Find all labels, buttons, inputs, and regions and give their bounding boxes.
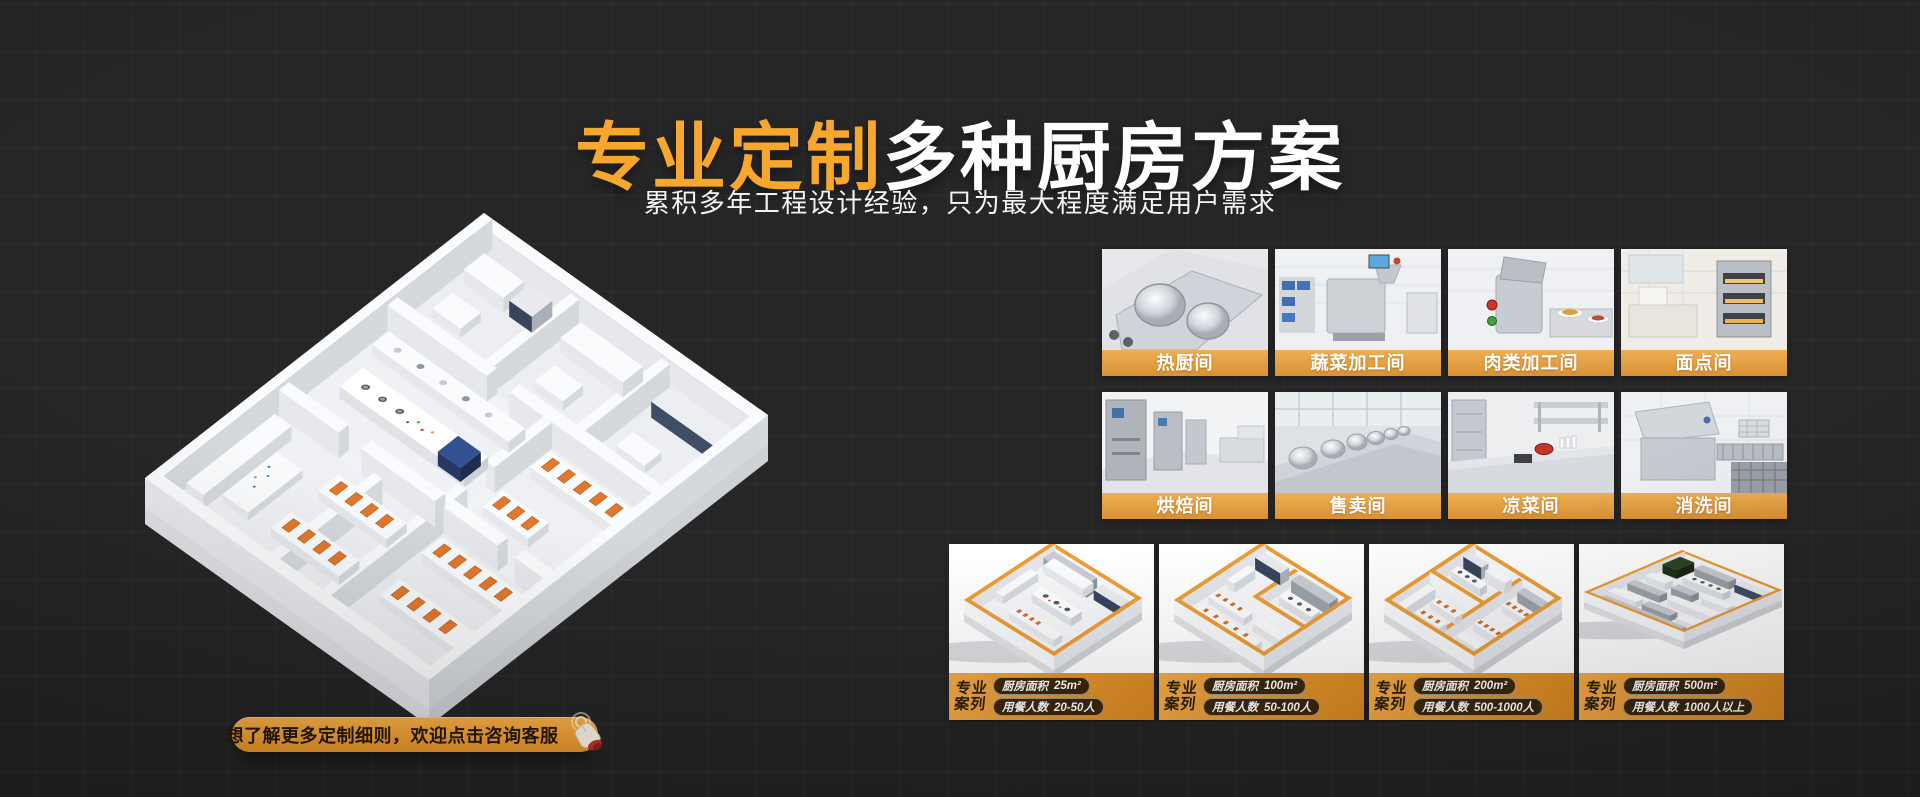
case-tag: 专业案列 <box>1163 681 1198 713</box>
case-tag: 专业案列 <box>1583 681 1618 713</box>
case-specs: 厨房面积25m² 用餐人数20-50人 <box>993 677 1104 716</box>
case-tag: 专业案列 <box>1373 681 1408 713</box>
case-card-500m2: 专业案列 厨房面积500m² 用餐人数1000人以上 <box>1579 544 1784 720</box>
room-tile-vegetable-processing: 蔬菜加工间 <box>1275 249 1441 376</box>
kitchen-area-spec: 厨房面积25m² <box>993 677 1090 695</box>
diners-count-spec: 用餐人数20-50人 <box>993 698 1104 716</box>
case-card-25m2: 专业案列 厨房面积25m² 用餐人数20-50人 <box>949 544 1154 720</box>
case-photo <box>1369 544 1574 673</box>
room-photo <box>1448 249 1614 350</box>
room-tile-baking: 烘焙间 <box>1102 392 1268 519</box>
case-200m2-render <box>1369 544 1574 673</box>
case-info-bar: 专业案列 厨房面积25m² 用餐人数20-50人 <box>949 673 1154 720</box>
case-100m2-render <box>1159 544 1364 673</box>
vegetable-processing-photo <box>1275 249 1441 350</box>
case-card-200m2: 专业案列 厨房面积200m² 用餐人数500-1000人 <box>1369 544 1574 720</box>
room-label: 消洗间 <box>1621 493 1787 519</box>
room-label: 热厨间 <box>1102 350 1268 376</box>
cta-label: 想了解更多定制细则，欢迎点击咨询客服 <box>226 722 559 748</box>
floorplan-3d-render <box>130 203 794 735</box>
kitchen-area-spec: 厨房面积200m² <box>1413 677 1516 695</box>
room-photo <box>1621 392 1787 493</box>
room-photo <box>1275 392 1441 493</box>
case-25m2-render <box>949 544 1154 673</box>
dishwashing-room-photo <box>1621 392 1787 493</box>
kitchen-floorplan-illustration <box>130 203 794 735</box>
diners-count-spec: 用餐人数50-100人 <box>1203 698 1320 716</box>
room-tile-pastry: 面点间 <box>1621 249 1787 376</box>
case-500m2-render <box>1579 544 1784 673</box>
diners-count-spec: 用餐人数1000人以上 <box>1623 698 1753 716</box>
diners-count-spec: 用餐人数500-1000人 <box>1413 698 1543 716</box>
room-label: 售卖间 <box>1275 493 1441 519</box>
case-specs: 厨房面积500m² 用餐人数1000人以上 <box>1623 677 1753 716</box>
room-photo <box>1102 392 1268 493</box>
room-tile-hot-kitchen: 热厨间 <box>1102 249 1268 376</box>
room-photo <box>1448 392 1614 493</box>
kitchen-area-spec: 厨房面积500m² <box>1623 677 1726 695</box>
room-tile-selling: 售卖间 <box>1275 392 1441 519</box>
room-label: 凉菜间 <box>1448 493 1614 519</box>
room-types-grid: 热厨间 蔬菜加工间 <box>1102 249 1787 519</box>
kitchen-area-spec: 厨房面积100m² <box>1203 677 1306 695</box>
baking-room-photo <box>1102 392 1268 493</box>
room-photo <box>1275 249 1441 350</box>
pastry-room-photo <box>1621 249 1787 350</box>
hand-click-icon <box>565 711 611 751</box>
case-specs: 厨房面积200m² 用餐人数500-1000人 <box>1413 677 1543 716</box>
room-photo <box>1621 249 1787 350</box>
room-tile-dishwashing: 消洗间 <box>1621 392 1787 519</box>
meat-processing-photo <box>1448 249 1614 350</box>
case-photo <box>1159 544 1364 673</box>
room-label: 面点间 <box>1621 350 1787 376</box>
case-photo <box>949 544 1154 673</box>
hot-kitchen-photo <box>1102 249 1268 350</box>
contact-service-button[interactable]: 想了解更多定制细则，欢迎点击咨询客服 <box>232 717 598 752</box>
case-info-bar: 专业案列 厨房面积500m² 用餐人数1000人以上 <box>1579 673 1784 720</box>
case-info-bar: 专业案列 厨房面积100m² 用餐人数50-100人 <box>1159 673 1364 720</box>
case-specs: 厨房面积100m² 用餐人数50-100人 <box>1203 677 1320 716</box>
case-info-bar: 专业案列 厨房面积200m² 用餐人数500-1000人 <box>1369 673 1574 720</box>
case-cards-row: 专业案列 厨房面积25m² 用餐人数20-50人 专业案列 厨房面积100m² … <box>949 544 1784 720</box>
room-label: 蔬菜加工间 <box>1275 350 1441 376</box>
room-tile-cold-dish: 凉菜间 <box>1448 392 1614 519</box>
room-photo <box>1102 249 1268 350</box>
room-label: 肉类加工间 <box>1448 350 1614 376</box>
selling-room-photo <box>1275 392 1441 493</box>
kitchen-solutions-banner: 专业定制多种厨房方案 累积多年工程设计经验，只为最大程度满足用户需求 热厨间 <box>0 0 1920 797</box>
case-photo <box>1579 544 1784 673</box>
room-label: 烘焙间 <box>1102 493 1268 519</box>
case-tag: 专业案列 <box>953 681 988 713</box>
room-tile-meat-processing: 肉类加工间 <box>1448 249 1614 376</box>
case-card-100m2: 专业案列 厨房面积100m² 用餐人数50-100人 <box>1159 544 1364 720</box>
cold-dish-room-photo <box>1448 392 1614 493</box>
